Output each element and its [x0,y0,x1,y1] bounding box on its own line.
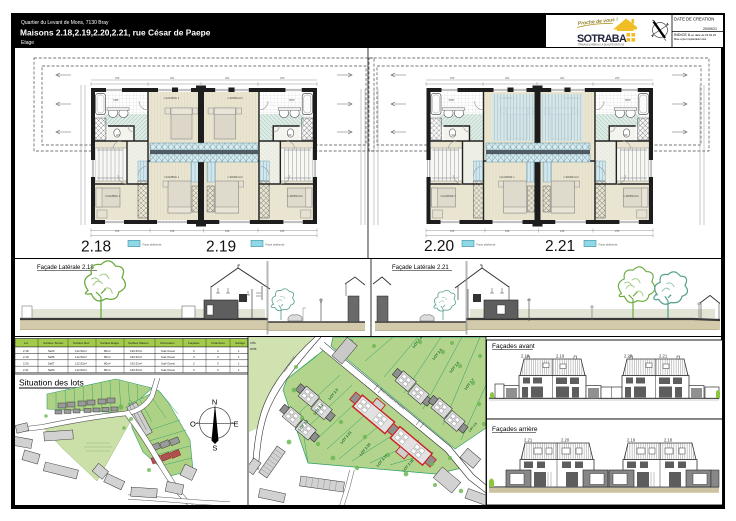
svg-text:255: 255 [615,229,620,233]
svg-text:2.21: 2.21 [23,368,29,372]
svg-text:Mise a jour implantation lots: Mise a jour implantation lots [674,37,707,41]
svg-text:2.18: 2.18 [521,354,530,359]
svg-text:2.21: 2.21 [659,354,668,359]
svg-text:Faux plafonds: Faux plafonds [599,242,618,246]
svg-text:250: 250 [615,76,620,80]
svg-text:Façade Latérale 2.21: Façade Latérale 2.21 [392,265,449,271]
svg-text:2.19: 2.19 [206,239,236,256]
svg-text:192.52m²: 192.52m² [130,368,142,372]
svg-text:250: 250 [115,76,120,80]
svg-text:2.20: 2.20 [23,362,29,366]
svg-text:302: 302 [505,76,510,80]
svg-text:Faux plafonds: Faux plafonds [477,242,496,246]
svg-text:250: 250 [280,76,285,80]
svg-text:Faux plafonds: Faux plafonds [266,242,285,246]
svg-text:2.21: 2.21 [545,238,575,255]
svg-text:Surface Etage: Surface Etage [100,341,119,345]
svg-text:Surface Rez: Surface Rez [73,341,90,345]
svg-text:E: E [234,420,239,429]
svg-text:255: 255 [280,229,285,233]
svg-text:2.20: 2.20 [424,238,455,255]
svg-text:112.52m²: 112.52m² [75,349,87,353]
svg-text:S: S [212,444,217,453]
svg-text:SOTRABA: SOTRABA [577,33,627,45]
svg-text:302: 302 [560,76,565,80]
svg-text:Etage: Etage [21,40,34,46]
svg-text:Orientation: Orientation [160,341,175,345]
svg-text:Quartier du Levant de Mons, 71: Quartier du Levant de Mons, 7130 Bray [21,20,109,26]
svg-text:Façade Latérale 2.18: Façade Latérale 2.18 [37,265,94,271]
svg-text:O: O [190,420,196,429]
svg-text:Surface Maison: Surface Maison [128,341,149,345]
svg-text:Surface Terrain: Surface Terrain [43,341,64,345]
svg-text:250: 250 [450,76,455,80]
svg-text:2.18: 2.18 [664,438,673,443]
svg-text:orts: orts [250,341,256,345]
svg-text:112.52m²: 112.52m² [75,355,87,359]
svg-text:Sud-Ouest: Sud-Ouest [161,355,175,359]
svg-text:298: 298 [560,229,565,233]
svg-text:Chambres: Chambres [211,341,225,345]
svg-text:298: 298 [505,229,510,233]
svg-text:2.19: 2.19 [627,438,636,443]
svg-text:INDICE A en date du 15.02.23: INDICE A en date du 15.02.23 [674,33,716,37]
svg-text:298: 298 [170,229,175,233]
svg-text:2.19: 2.19 [23,355,29,359]
svg-text:80m²: 80m² [104,349,111,353]
svg-text:Faux plafonds: Faux plafonds [143,242,162,246]
svg-text:80m²: 80m² [104,355,111,359]
svg-text:255: 255 [450,229,455,233]
svg-text:302: 302 [170,76,175,80]
svg-text:255: 255 [115,229,120,233]
svg-text:TRAVAUX & RENOV, LA QUALITE EN: TRAVAUX & RENOV, LA QUALITE EN PLUS [578,44,625,47]
svg-text:Façades avant: Façades avant [492,343,535,350]
svg-text:5a80: 5a80 [48,368,55,372]
svg-text:Façades: Façades [188,341,200,345]
svg-text:2.20: 2.20 [624,354,633,359]
svg-text:Sud-Ouest: Sud-Ouest [161,362,175,366]
svg-text:DATE DE CREATION: DATE DE CREATION [674,17,714,22]
svg-text:80m²: 80m² [104,362,111,366]
svg-text:2.19: 2.19 [556,354,565,359]
svg-text:298: 298 [225,229,230,233]
svg-text:5a03: 5a03 [48,349,55,353]
svg-text:20/09/21: 20/09/21 [703,27,717,31]
svg-text:2.18: 2.18 [81,239,111,256]
svg-text:ants: ants [250,347,257,351]
svg-text:192.52m²: 192.52m² [130,355,142,359]
svg-text:80m²: 80m² [104,368,111,372]
svg-text:5a86: 5a86 [48,355,55,359]
svg-text:302: 302 [225,76,230,80]
svg-text:Maisons 2.18,2.19,2.20,2.21, r: Maisons 2.18,2.19,2.20,2.21, rue César d… [20,28,211,38]
svg-text:5a87: 5a87 [48,362,55,366]
svg-text:Façades arrière: Façades arrière [492,426,538,433]
svg-text:112.52m²: 112.52m² [75,368,87,372]
svg-text:Situation des lots: Situation des lots [19,378,84,388]
svg-text:Lot: Lot [24,341,28,345]
svg-text:192.52m²: 192.52m² [130,362,142,366]
svg-text:2.18: 2.18 [23,349,29,353]
svg-text:N: N [212,398,217,407]
svg-text:2.21: 2.21 [524,438,533,443]
svg-text:2.20: 2.20 [561,438,570,443]
svg-text:Sud-Ouest: Sud-Ouest [161,349,175,353]
svg-text:112.52m²: 112.52m² [75,362,87,366]
svg-text:192.52m²: 192.52m² [130,349,142,353]
svg-text:Garage: Garage [235,341,245,345]
svg-text:Sud-Ouest: Sud-Ouest [161,368,175,372]
